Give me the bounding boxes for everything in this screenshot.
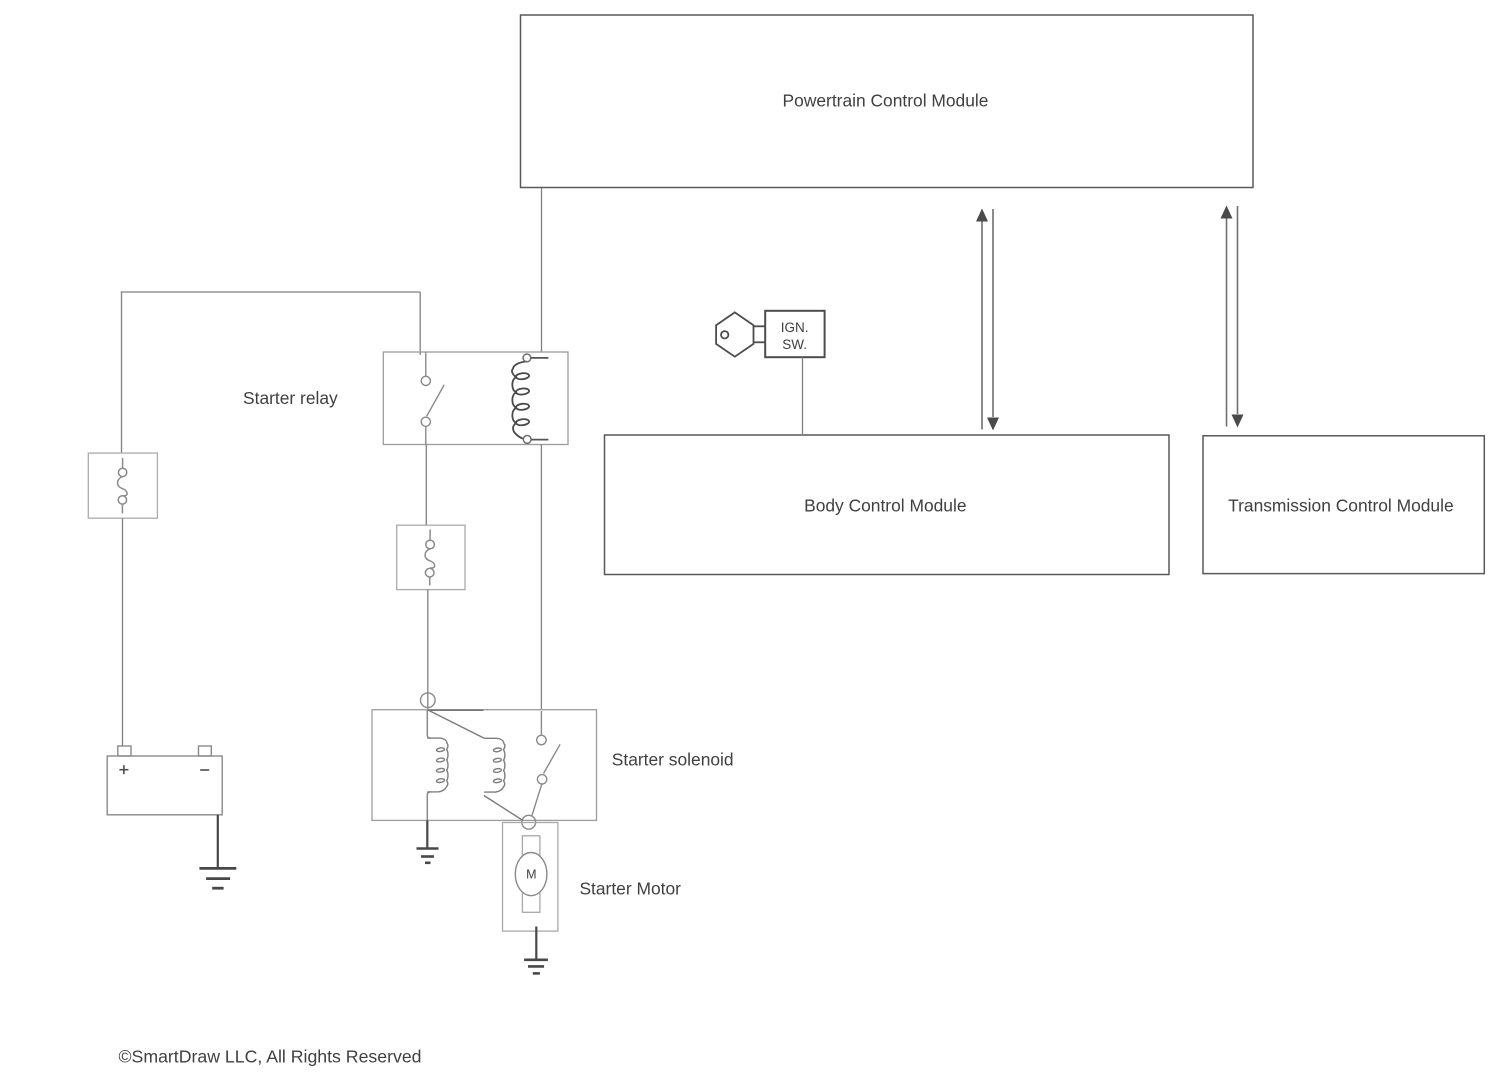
svg-text:©SmartDraw LLC, All Rights Res: ©SmartDraw LLC, All Rights Reserved xyxy=(119,1047,422,1067)
svg-text:SW.: SW. xyxy=(782,337,807,352)
svg-text:Starter Motor: Starter Motor xyxy=(579,878,681,898)
svg-text:Starter solenoid: Starter solenoid xyxy=(612,749,734,769)
svg-text:IGN.: IGN. xyxy=(781,320,809,335)
svg-text:Body Control Module: Body Control Module xyxy=(804,496,966,516)
svg-text:Starter relay: Starter relay xyxy=(243,388,338,408)
svg-text:Powertrain Control Module: Powertrain Control Module xyxy=(783,91,989,111)
svg-text:Transmission Control Module: Transmission Control Module xyxy=(1228,496,1454,516)
svg-text:M: M xyxy=(526,868,536,882)
